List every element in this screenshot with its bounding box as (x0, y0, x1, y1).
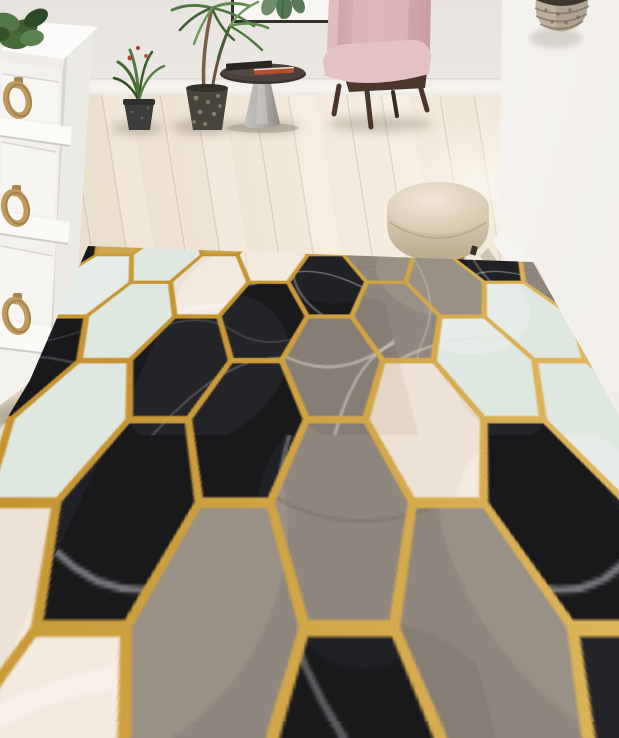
coffee-table (210, 40, 320, 135)
pink-armchair (315, 0, 440, 135)
small-plant (114, 46, 164, 130)
dresser-top-plant (0, 0, 62, 60)
chair-seat-cushion (323, 40, 431, 83)
room-scene (0, 0, 619, 738)
white-dresser (0, 0, 110, 440)
pouf-top (387, 182, 489, 234)
small-plant-pot (124, 102, 154, 130)
woven-wall-planter (528, 0, 608, 55)
cream-pouf (375, 166, 505, 296)
